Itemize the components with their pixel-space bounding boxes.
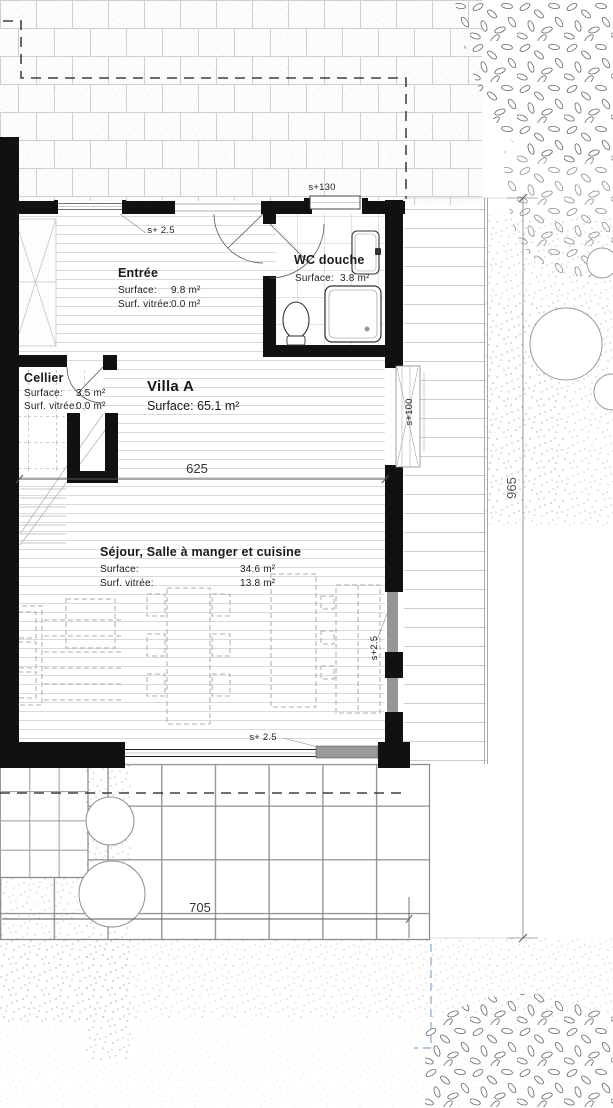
room-label-wc: WC douche [294, 253, 365, 267]
svg-text:0.0 m²: 0.0 m² [171, 299, 201, 310]
svg-text:Surface:: Surface: [295, 273, 334, 284]
svg-text:34.6 m²: 34.6 m² [240, 564, 276, 575]
entry-closet [15, 219, 56, 346]
tree-right [530, 308, 602, 380]
svg-text:13.8 m²: 13.8 m² [240, 578, 276, 589]
svg-text:Surface:: Surface: [100, 564, 139, 575]
tree-terrace-upper [86, 797, 134, 845]
svg-text:Surf. vitrée:: Surf. vitrée: [100, 578, 154, 589]
dim-965-text: 965 [504, 477, 519, 499]
svg-text:0.0 m²: 0.0 m² [76, 401, 106, 412]
level-entry-window: s+ 2.5 [147, 225, 174, 236]
level-wc-window: s+130 [308, 182, 335, 193]
terrace-small-tiles [0, 764, 88, 878]
foliage-bottom-right [425, 994, 613, 1108]
svg-text:Surf. vitrée:: Surf. vitrée: [24, 401, 78, 412]
svg-text:Surface:: Surface: [24, 388, 63, 399]
svg-text:9.8 m²: 9.8 m² [171, 285, 201, 296]
wc-window [304, 196, 368, 214]
tree-terrace-lower [79, 861, 145, 927]
level-living-window: s+2.5 [369, 636, 380, 661]
floor-plan-drawing: 625 705 965 s+ 2.5 s+130 s+100 s+2.5 s+ … [0, 0, 613, 1108]
terrace-sliding-door [125, 746, 378, 765]
shrub-right [587, 248, 613, 278]
dim-625-text: 625 [186, 461, 208, 476]
dim-705-text: 705 [189, 900, 211, 915]
level-terrace-door: s+ 2.5 [249, 732, 276, 743]
floor-plan: 625 705 965 s+ 2.5 s+130 s+100 s+2.5 s+ … [0, 0, 613, 1108]
side-deck [404, 198, 486, 762]
level-side-window: s+100 [404, 398, 415, 425]
svg-text:Surf. vitrée:: Surf. vitrée: [118, 299, 172, 310]
entry-window [54, 200, 126, 214]
svg-text:Surface:: Surface: [118, 285, 157, 296]
shower [325, 286, 381, 342]
room-label-cellier: Cellier [24, 371, 64, 385]
room-label-sejour: Séjour, Salle à manger et cuisine [100, 545, 301, 559]
svg-text:3.5 m²: 3.5 m² [76, 388, 106, 399]
svg-text:3.8 m²: 3.8 m² [340, 273, 370, 284]
room-label-entree: Entrée [118, 266, 158, 280]
villa-title: Villa A [147, 378, 194, 395]
villa-surface: Surface: 65.1 m² [147, 399, 239, 413]
toilet [283, 302, 309, 345]
living-window-right [387, 592, 398, 652]
